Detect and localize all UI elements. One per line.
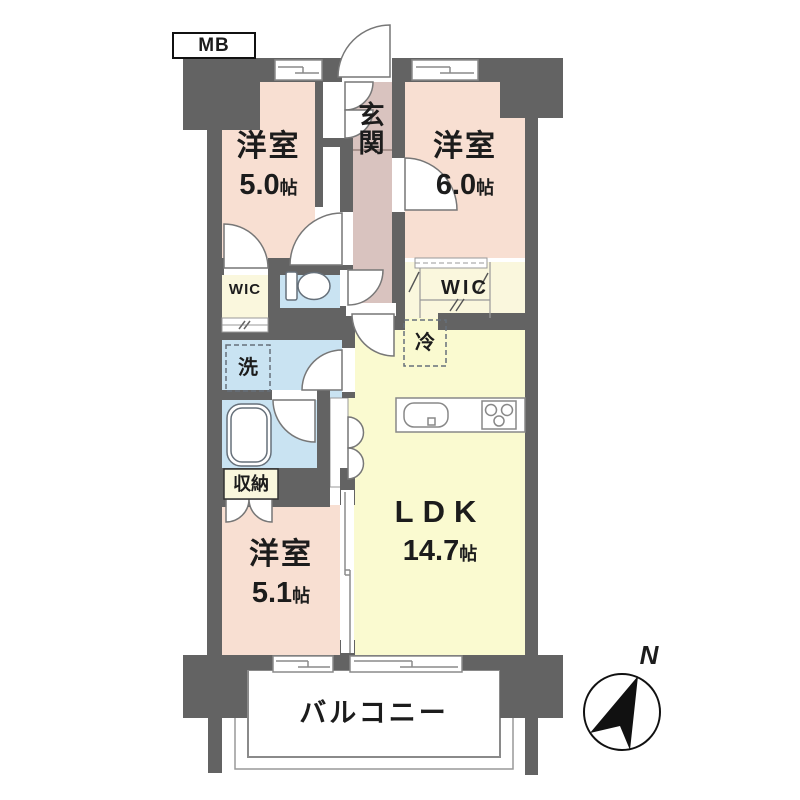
bedroom1-label: 洋室 5.0帖 — [222, 130, 315, 202]
bedroom2-size: 6.0帖 — [405, 169, 525, 202]
bedroom1-size: 5.0帖 — [222, 169, 315, 202]
ldk-label: LDK 14.7帖 — [355, 494, 525, 568]
storage-label: 収納 — [224, 469, 278, 499]
entrance-label: 玄関 — [346, 90, 392, 168]
laundry-label: 洗 — [226, 345, 270, 391]
toilet-fixture — [286, 272, 330, 300]
meter-box-label: MB — [173, 33, 255, 58]
bedroom3-ldk-sliding-partition — [341, 490, 354, 653]
kitchen-sink — [404, 403, 448, 427]
window-bedroom1-top — [275, 60, 322, 80]
floor-plan: MB 玄関 洋室 5.0帖 洋室 6.0帖 洋室 5.1帖 LDK 14.7帖 … — [0, 0, 800, 800]
balcony-label: バルコニー — [248, 670, 500, 757]
wic-right-label: WIC — [405, 262, 525, 314]
bedroom3-name: 洋室 — [222, 538, 340, 573]
wic-left-label: WIC — [222, 265, 268, 315]
ldk-size: 14.7帖 — [355, 535, 525, 568]
compass-north-label: N — [630, 640, 668, 670]
bedroom3-label: 洋室 5.1帖 — [222, 538, 340, 610]
window-bedroom2-top — [412, 60, 478, 80]
ldk-name: LDK — [355, 494, 525, 530]
entrance-door-arc — [338, 25, 390, 77]
bedroom3-size: 5.1帖 — [222, 577, 340, 610]
bathtub — [227, 404, 271, 466]
kitchen-counter — [396, 398, 525, 432]
bedroom1-name: 洋室 — [222, 130, 315, 165]
bedroom2-label: 洋室 6.0帖 — [405, 130, 525, 202]
refrigerator-label: 冷 — [404, 320, 446, 366]
wic-left-sliding-door — [222, 318, 268, 332]
compass — [584, 674, 660, 750]
bedroom2-name: 洋室 — [405, 130, 525, 165]
